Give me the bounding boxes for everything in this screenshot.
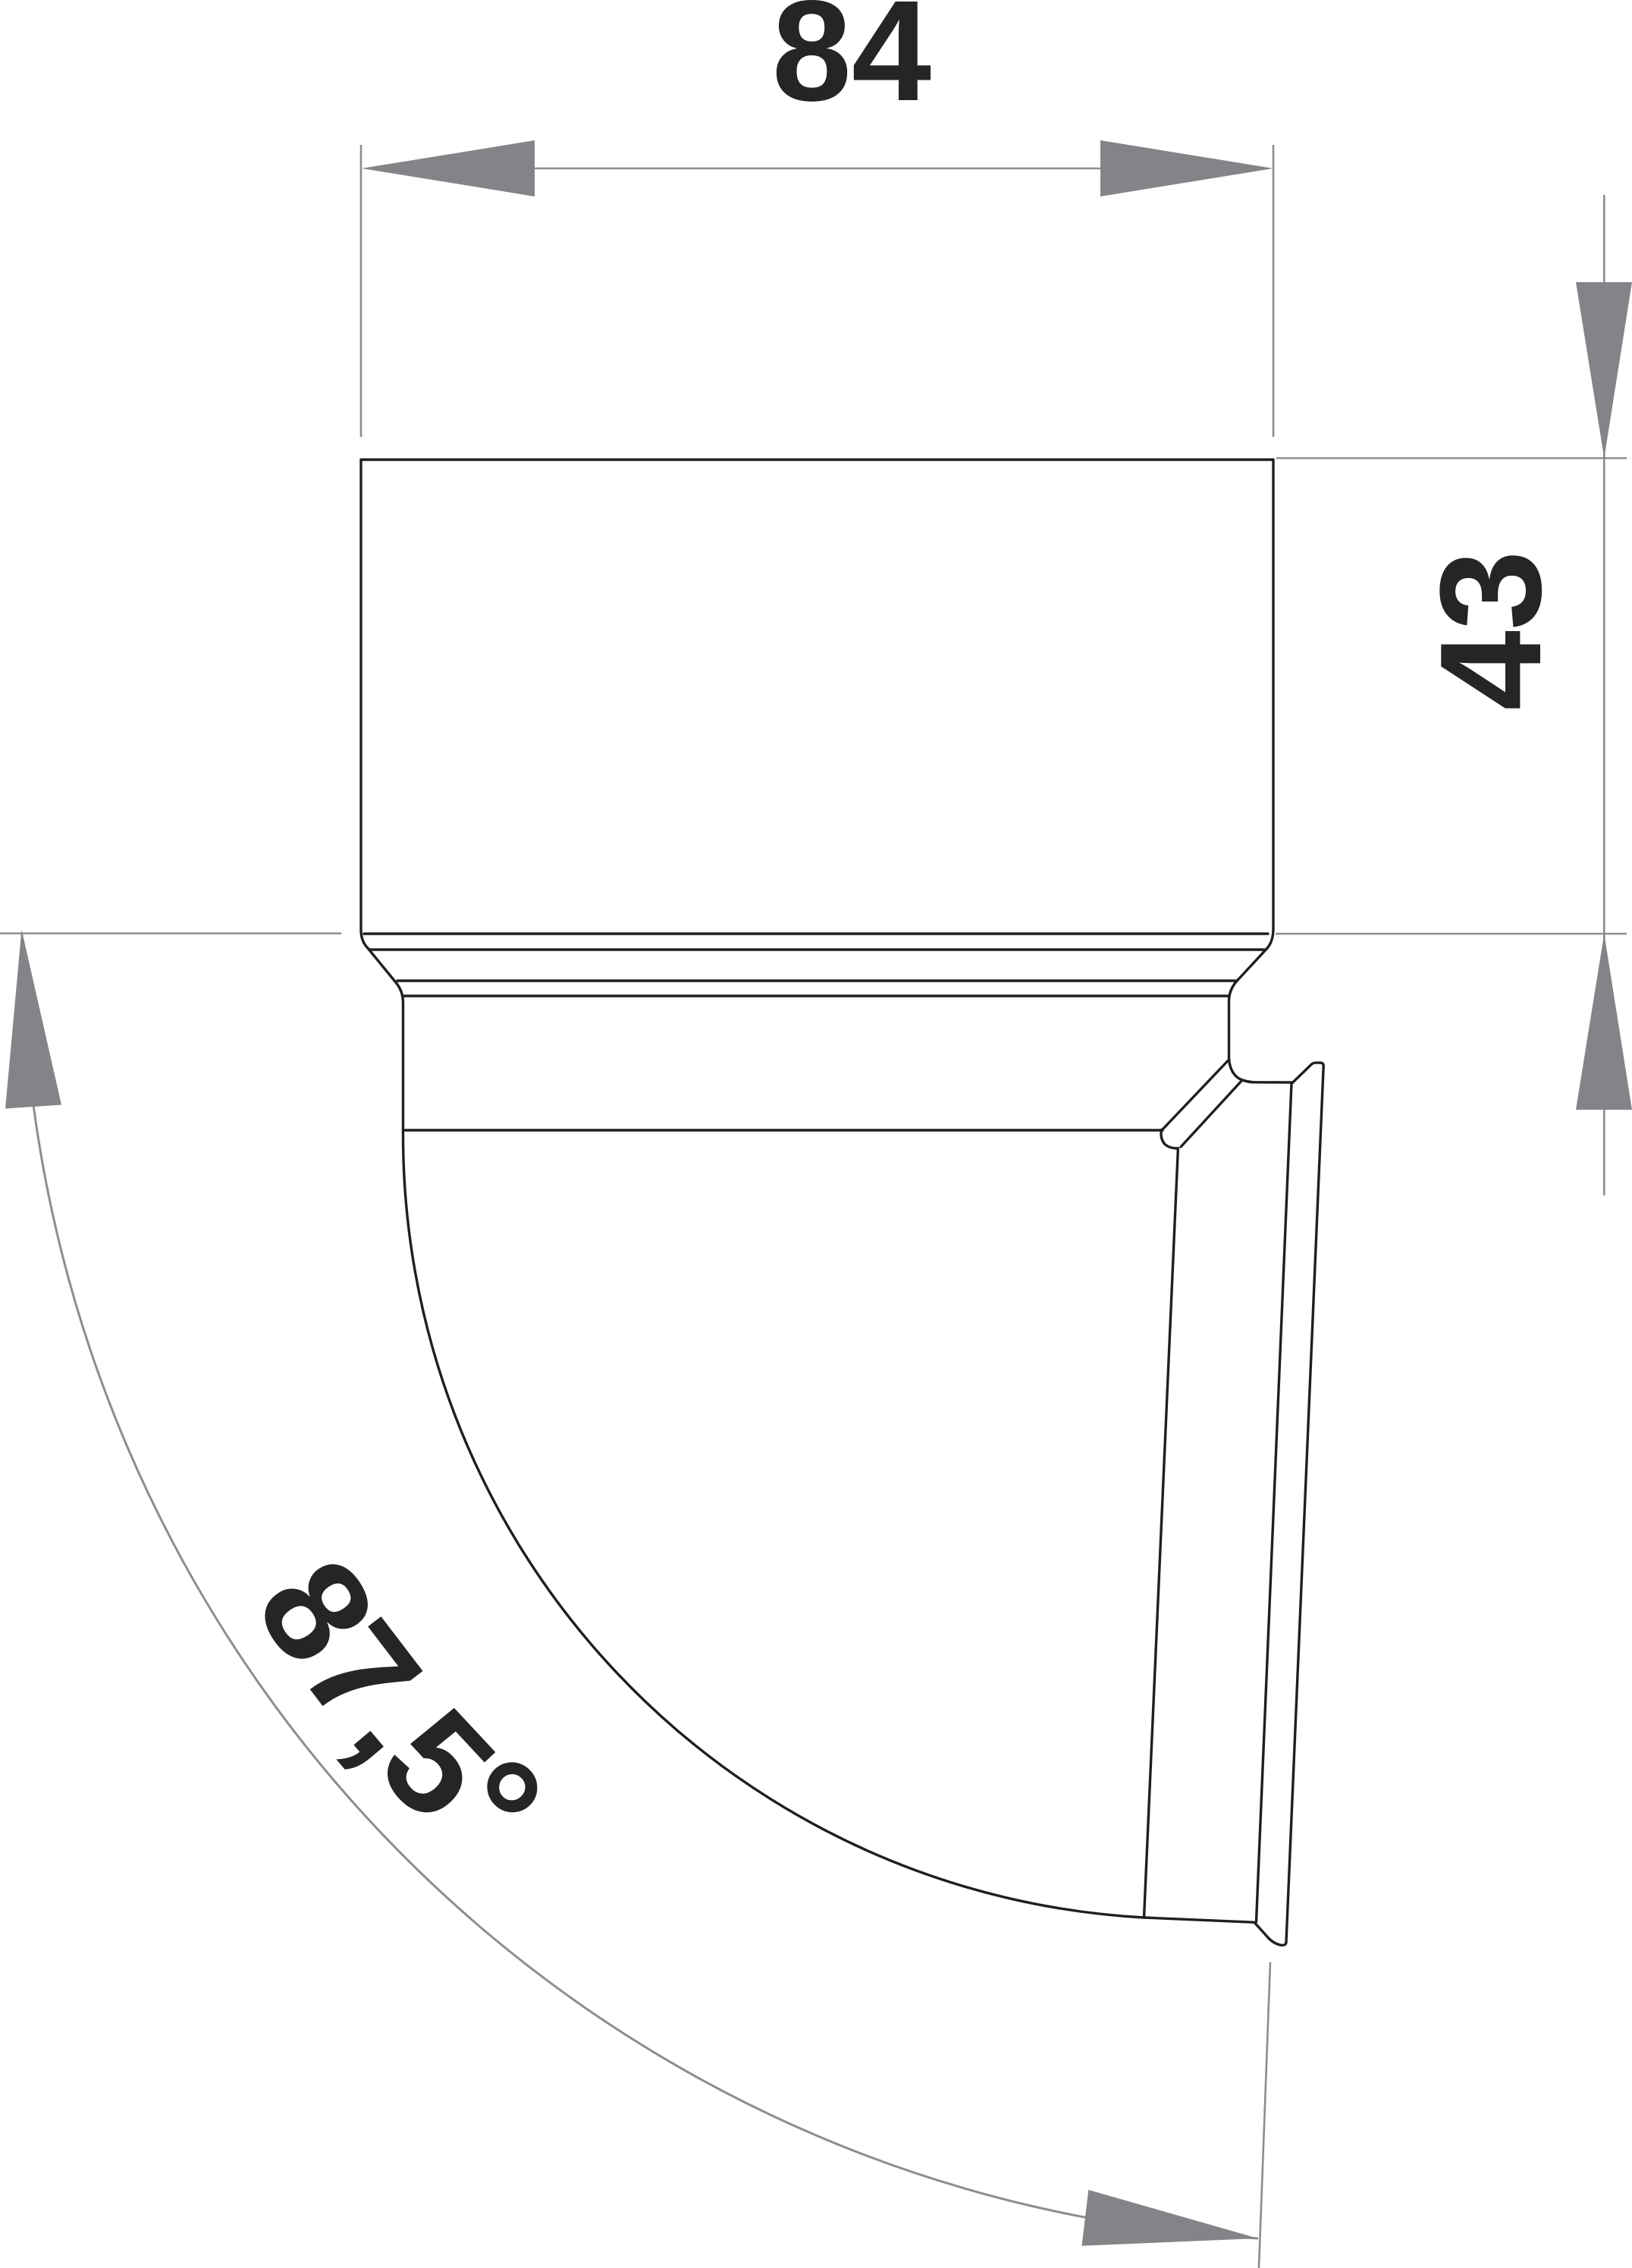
svg-text:84: 84 [772, 0, 931, 131]
svg-text:87,5°: 87,5° [226, 1531, 576, 1897]
svg-text:43: 43 [1411, 550, 1571, 710]
